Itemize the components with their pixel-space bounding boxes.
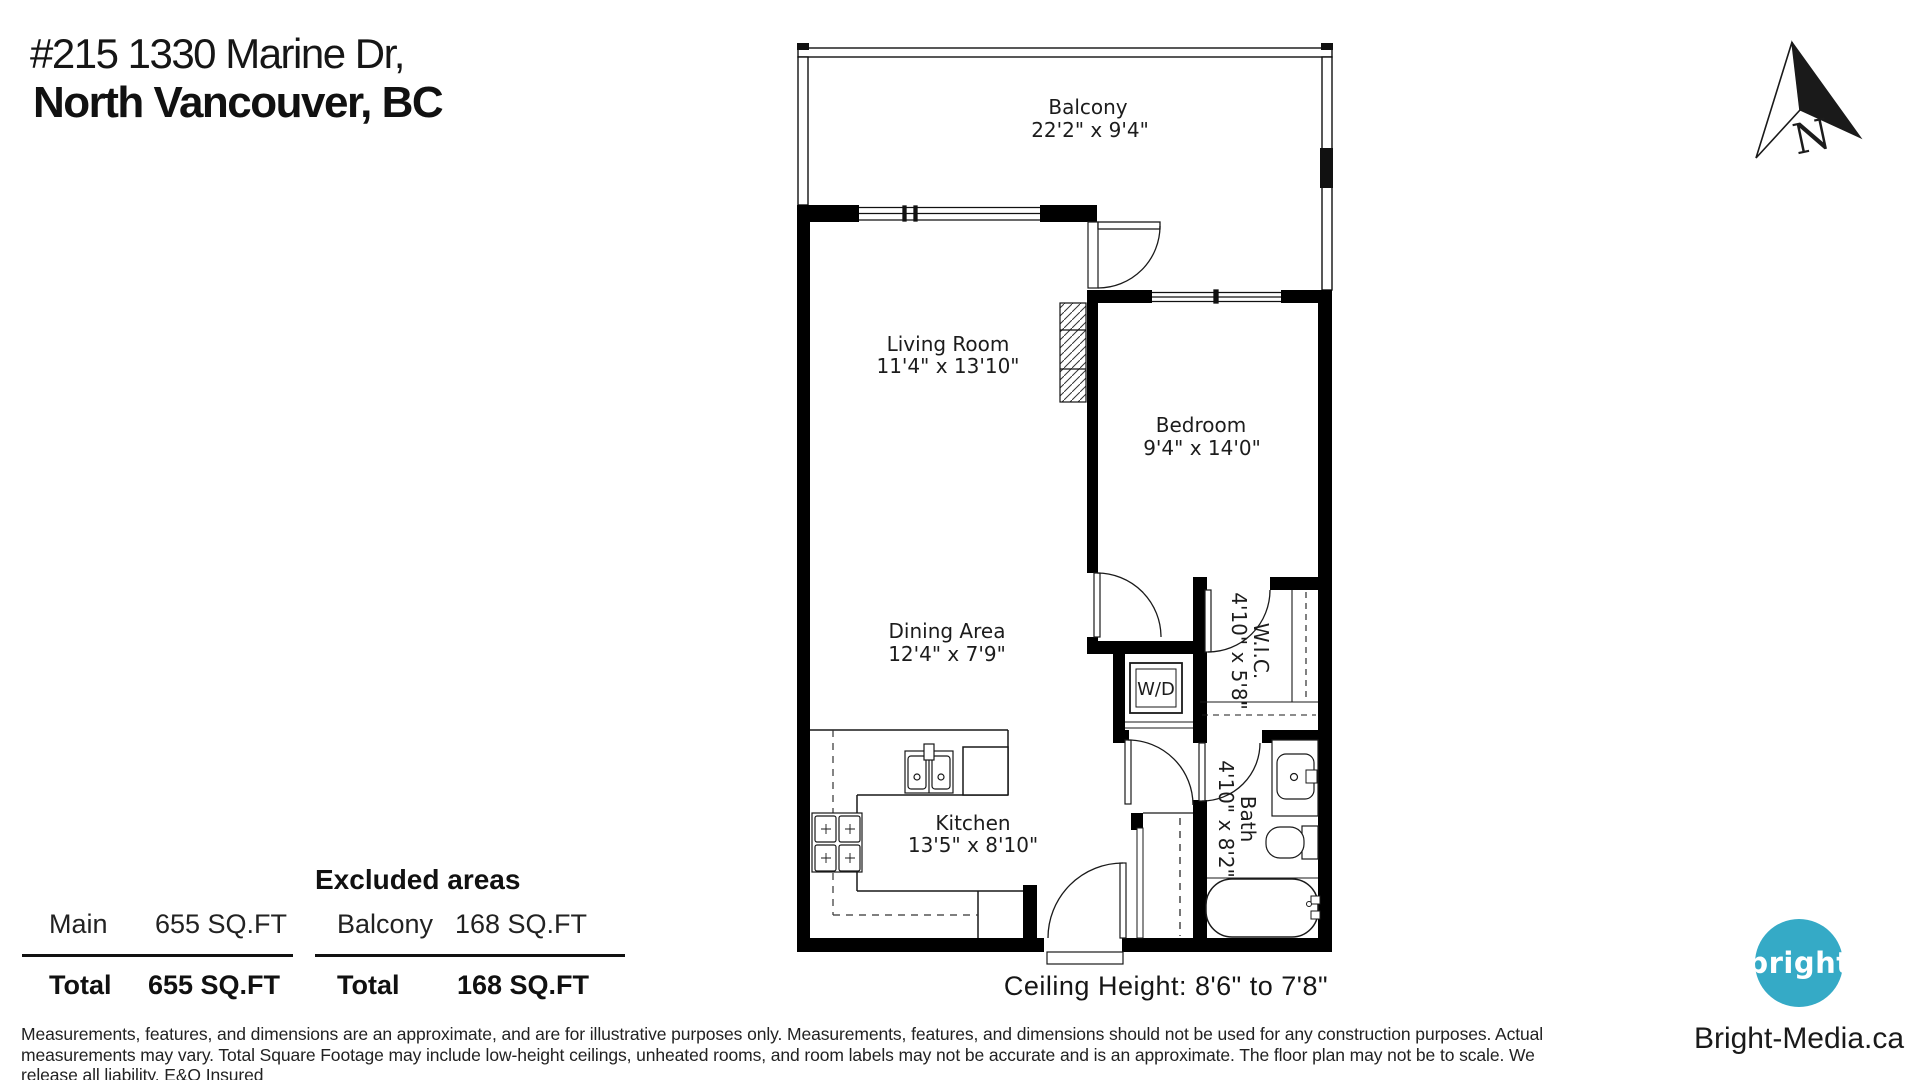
page-title: #215 1330 Marine Dr, xyxy=(30,30,404,78)
table-divider xyxy=(22,954,293,957)
bath-dims: 4'10" x 8'2" xyxy=(1214,760,1238,878)
excluded-areas-table: Excluded areas Balcony 168 SQ.FT Total 1… xyxy=(315,860,625,1010)
dining-area-label: Dining Area xyxy=(889,619,1006,643)
website-url: Bright-Media.ca xyxy=(1649,1022,1920,1056)
fireplace-hatched-box xyxy=(1060,303,1086,402)
disclaimer-line: measurements may vary. Total Square Foot… xyxy=(21,1045,1681,1066)
table-total-value: 168 SQ.FT xyxy=(457,970,589,1001)
disclaimer-line: release all liability. E&O Insured xyxy=(21,1065,1681,1080)
kitchen-dims: 13'5" x 8'10" xyxy=(908,833,1038,857)
dining-area-dims: 12'4" x 7'9" xyxy=(888,642,1006,666)
table-title: Excluded areas xyxy=(315,864,520,896)
kitchen-fridge-icon xyxy=(963,747,1008,795)
kitchen-label: Kitchen xyxy=(935,811,1010,835)
table-total-label: Total xyxy=(337,970,400,1001)
north-arrow-icon: N xyxy=(1735,22,1895,172)
bedroom-door xyxy=(1094,573,1161,637)
table-row-value: 655 SQ.FT xyxy=(155,909,287,940)
wic-dims: 4'10" x 5'8" xyxy=(1227,592,1251,710)
main-area-table: Main 655 SQ.FT Total 655 SQ.FT xyxy=(22,860,293,1010)
logo-wordmark: bright xyxy=(1747,946,1850,980)
bedroom-dims: 9'4" x 14'0" xyxy=(1143,436,1261,460)
entry-closet xyxy=(1137,813,1193,938)
table-divider xyxy=(315,954,625,957)
bright-media-logo: bright xyxy=(1755,919,1843,1007)
toilet-icon xyxy=(1266,826,1318,859)
page-subtitle: North Vancouver, BC xyxy=(33,78,442,128)
wic-label: W.I.C. xyxy=(1249,623,1273,679)
floorplan-drawing: Balcony 22'2" x 9'4" Living Room 11'4" x… xyxy=(780,30,1360,970)
table-row-label: Balcony xyxy=(337,909,433,940)
hall-door xyxy=(1125,740,1193,805)
bath-label: Bath xyxy=(1236,796,1260,843)
table-row-label: Main xyxy=(49,909,108,940)
balcony-dims: 22'2" x 9'4" xyxy=(1031,118,1149,142)
disclaimer-line: Measurements, features, and dimensions a… xyxy=(21,1024,1681,1045)
balcony-door xyxy=(1088,222,1160,288)
balcony-railings xyxy=(797,43,1333,290)
ceiling-height-note: Ceiling Height: 8'6" to 7'8" xyxy=(995,971,1337,1002)
bedroom-label: Bedroom xyxy=(1156,413,1246,437)
disclaimer-text: Measurements, features, and dimensions a… xyxy=(21,1024,1681,1080)
table-row-value: 168 SQ.FT xyxy=(455,909,587,940)
floorplan-page: #215 1330 Marine Dr, North Vancouver, BC… xyxy=(0,0,1920,1080)
kitchen-stove-icon xyxy=(812,813,862,872)
bathtub-icon xyxy=(1206,878,1320,937)
table-total-label: Total xyxy=(49,970,112,1001)
living-room-window xyxy=(859,206,1040,221)
living-room-label: Living Room xyxy=(887,332,1010,356)
table-total-value: 655 SQ.FT xyxy=(148,970,280,1001)
balcony-label: Balcony xyxy=(1048,95,1127,119)
bedroom-window xyxy=(1152,290,1281,303)
entry-door xyxy=(1047,863,1126,964)
living-room-dims: 11'4" x 13'10" xyxy=(876,354,1019,378)
bath-vanity-icon xyxy=(1272,740,1318,816)
wd-label: W/D xyxy=(1137,679,1175,700)
kitchen-sink-icon xyxy=(905,744,953,793)
